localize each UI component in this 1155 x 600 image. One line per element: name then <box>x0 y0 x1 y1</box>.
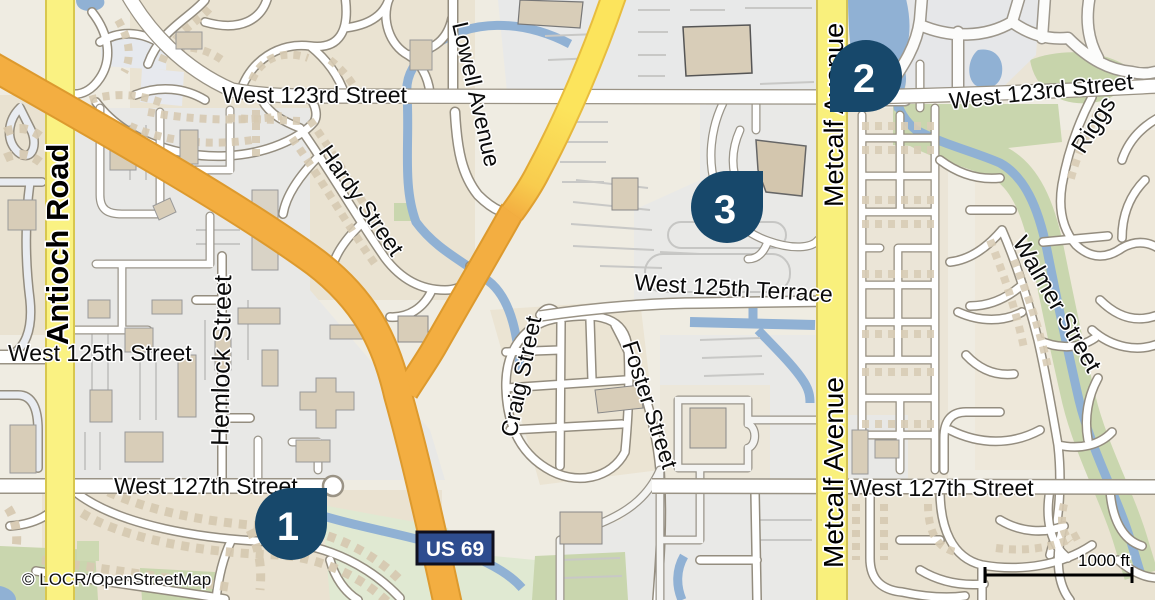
svg-text:US 69: US 69 <box>426 538 484 561</box>
svg-text:© LOCR/OpenStreetMap: © LOCR/OpenStreetMap <box>22 570 211 589</box>
svg-text:West 127th Street: West 127th Street <box>850 475 1034 501</box>
svg-text:West 125th Street: West 125th Street <box>8 340 192 366</box>
svg-text:1: 1 <box>277 505 299 549</box>
svg-text:Hemlock Street: Hemlock Street <box>206 275 237 446</box>
svg-text:Antioch Road: Antioch Road <box>40 144 75 346</box>
svg-text:2: 2 <box>853 57 875 101</box>
svg-text:West 123rd Street: West 123rd Street <box>222 82 408 108</box>
svg-text:Metcalf Avenue: Metcalf Avenue <box>818 377 849 568</box>
svg-text:3: 3 <box>714 188 736 232</box>
svg-text:1000 ft: 1000 ft <box>1078 551 1130 570</box>
